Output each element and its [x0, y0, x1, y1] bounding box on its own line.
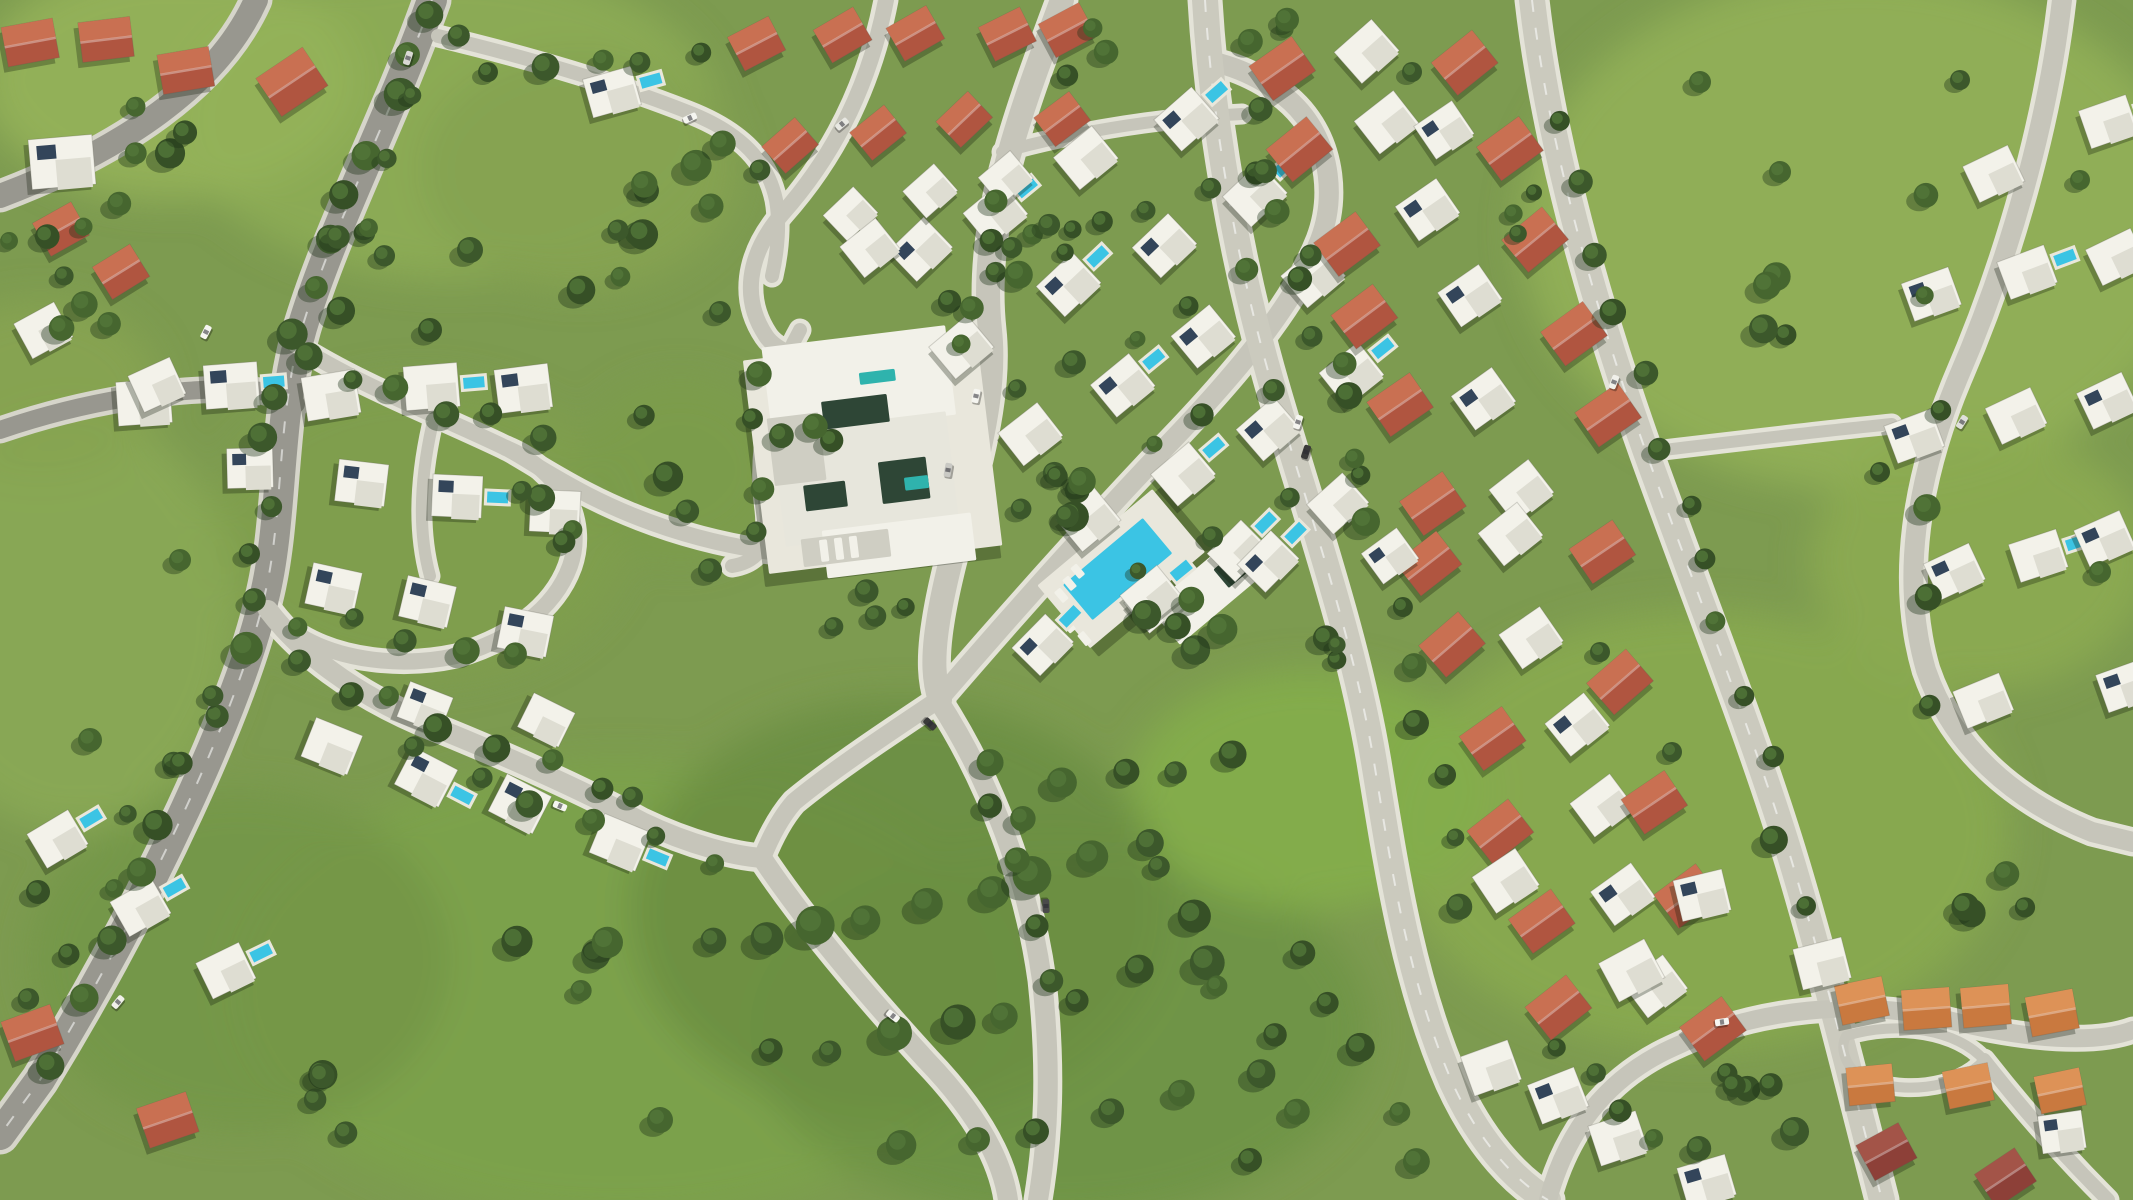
tree-canopy-highlight: [376, 247, 388, 259]
tree-canopy-highlight: [772, 426, 786, 440]
tree-canopy-highlight: [1872, 464, 1883, 475]
car: [1040, 897, 1050, 913]
tree-canopy-highlight: [2091, 563, 2103, 575]
tree-canopy-highlight: [1933, 402, 1944, 413]
tree-canopy-highlight: [128, 99, 139, 110]
tree-canopy-highlight: [533, 427, 548, 442]
tree-canopy-highlight: [648, 828, 658, 838]
grass-field: [630, 700, 1170, 1120]
tree-canopy-highlight: [250, 426, 266, 442]
tree-canopy-highlight: [1170, 1082, 1185, 1097]
tree-canopy-highlight: [1181, 298, 1192, 309]
tree-canopy-highlight: [987, 192, 1000, 205]
tree-canopy-highlight: [1094, 213, 1106, 225]
car-windshield: [1043, 904, 1048, 908]
tree-canopy-highlight: [171, 551, 183, 563]
tree-canopy-highlight: [703, 930, 717, 944]
tree-canopy-highlight: [1689, 1139, 1703, 1153]
tree-canopy-highlight: [1085, 20, 1096, 31]
tree-canopy-highlight: [693, 45, 704, 56]
tree-canopy-highlight: [1293, 943, 1307, 957]
tree-canopy-highlight: [56, 268, 67, 279]
tree-canopy-highlight: [1511, 227, 1521, 237]
tree-canopy-highlight: [889, 1133, 906, 1150]
tree-canopy-highlight: [749, 364, 763, 378]
tree-canopy-highlight: [1096, 42, 1110, 56]
tree-canopy-highlight: [264, 386, 278, 400]
tree-canopy-highlight: [121, 807, 131, 817]
tree-canopy-highlight: [555, 533, 568, 546]
tree-canopy-highlight: [707, 856, 717, 866]
tree-canopy-highlight: [1193, 406, 1206, 419]
tree-canopy-highlight: [1148, 437, 1157, 446]
tree-canopy-highlight: [534, 56, 549, 71]
tree-canopy-highlight: [1319, 994, 1331, 1006]
tree-canopy-highlight: [1406, 1151, 1421, 1166]
tree-canopy-highlight: [631, 222, 648, 239]
tree-canopy-highlight: [1181, 589, 1195, 603]
tree-canopy-highlight: [330, 299, 346, 315]
tree-canopy-highlight: [518, 793, 533, 808]
tree-canopy-highlight: [474, 770, 485, 781]
tree-canopy-highlight: [1042, 971, 1055, 984]
tree-canopy-highlight: [1736, 688, 1747, 699]
tree-canopy-highlight: [145, 813, 162, 830]
tree-canopy-highlight: [347, 610, 357, 620]
tree-canopy-highlight: [80, 730, 93, 743]
tree-canopy-highlight: [1028, 917, 1041, 930]
tree-canopy-highlight: [361, 220, 371, 230]
tree-canopy-highlight: [1437, 766, 1449, 778]
tree-canopy-highlight: [569, 278, 585, 294]
tree-canopy-highlight: [290, 652, 303, 665]
tree-canopy-highlight: [1404, 64, 1415, 75]
building-red-roof: [73, 17, 135, 69]
tree-canopy-highlight: [1058, 245, 1068, 255]
tree-canopy-highlight: [1921, 697, 1933, 709]
tree-canopy-highlight: [341, 685, 355, 699]
tree-canopy-highlight: [1765, 748, 1777, 760]
tree-canopy-highlight: [1026, 1121, 1040, 1135]
tree-canopy-highlight: [1059, 67, 1071, 79]
roof-wing: [2057, 1127, 2084, 1153]
tree-canopy-highlight: [307, 278, 320, 291]
tree-canopy-highlight: [544, 751, 556, 763]
tree-canopy-highlight: [595, 930, 612, 947]
tree-canopy-highlight: [701, 196, 715, 210]
tree-canopy-highlight: [175, 123, 188, 136]
tree-canopy-highlight: [1330, 638, 1339, 647]
tree-canopy-highlight: [460, 240, 474, 254]
solar-panels: [36, 145, 56, 161]
tree-canopy-highlight: [1611, 1102, 1624, 1115]
tree-canopy-highlight: [20, 990, 32, 1002]
tree-canopy-highlight: [1506, 206, 1516, 216]
car-windshield: [1720, 1019, 1725, 1025]
tree-canopy-highlight: [1684, 498, 1695, 509]
solar-panels: [210, 370, 227, 384]
tree-canopy-highlight: [1240, 1150, 1253, 1163]
tree-canopy-highlight: [418, 4, 433, 19]
tree-canopy-highlight: [345, 372, 355, 382]
tree-canopy-highlight: [337, 1124, 350, 1137]
tree-canopy-highlight: [1952, 72, 1963, 83]
tree-canopy-highlight: [635, 407, 647, 419]
tree-canopy-highlight: [1040, 216, 1052, 228]
tree-canopy-highlight: [1954, 896, 1969, 911]
solar-panels: [343, 466, 359, 479]
tree-canopy-highlight: [1917, 586, 1932, 601]
roof-wing: [451, 494, 480, 520]
tree-canopy-highlight: [962, 298, 975, 311]
tree-canopy-highlight: [853, 908, 870, 925]
tree-canopy-highlight: [805, 416, 819, 430]
tree-canopy-highlight: [1064, 353, 1077, 366]
tree-canopy-highlight: [385, 377, 399, 391]
tree-canopy-highlight: [355, 144, 371, 160]
tree-canopy-highlight: [1138, 203, 1148, 213]
tree-canopy-highlight: [312, 1066, 326, 1080]
tree-canopy-highlight: [1552, 113, 1563, 124]
tree-canopy-highlight: [396, 632, 409, 645]
tree-canopy-highlight: [1798, 898, 1809, 909]
tree-canopy-highlight: [1166, 764, 1178, 776]
tree-canopy-highlight: [1762, 829, 1778, 845]
tree-canopy-highlight: [987, 264, 998, 275]
tree-canopy-highlight: [172, 754, 185, 767]
roof-wing: [518, 383, 551, 413]
tree-canopy-highlight: [73, 987, 89, 1003]
tree-canopy-highlight: [1636, 363, 1650, 377]
tree-canopy-highlight: [1752, 317, 1768, 333]
tree-canopy-highlight: [650, 1110, 664, 1124]
solar-panels: [2043, 1119, 2058, 1131]
tree-canopy-highlight: [754, 925, 772, 943]
tree-canopy-highlight: [1010, 381, 1020, 391]
swimming-pool: [463, 376, 485, 389]
tree-canopy-highlight: [485, 737, 500, 752]
tree-canopy-highlight: [1916, 497, 1931, 512]
tree-canopy-highlight: [130, 860, 146, 876]
tree-canopy-highlight: [1203, 180, 1214, 191]
tree-canopy-highlight: [1588, 1065, 1599, 1076]
tree-canopy-highlight: [1917, 288, 1927, 298]
tree-canopy-highlight: [1691, 73, 1703, 85]
roof-wing: [325, 389, 359, 420]
roof-wing: [55, 157, 93, 190]
tree-canopy-highlight: [1338, 385, 1353, 400]
structure-part: [803, 481, 848, 512]
tree-canopy-highlight: [1762, 1075, 1775, 1088]
tree-canopy-highlight: [60, 946, 72, 958]
building-white-roof: [2033, 1110, 2088, 1160]
tree-canopy-highlight: [530, 487, 545, 502]
tree-canopy-highlight: [700, 561, 713, 574]
tree-canopy-highlight: [1448, 830, 1458, 840]
tree-canopy-highlight: [51, 318, 65, 332]
tree-canopy-highlight: [1756, 274, 1771, 289]
tree-canopy-highlight: [634, 174, 649, 189]
tree-canopy-highlight: [1646, 1131, 1656, 1141]
solar-panels: [232, 454, 246, 466]
tree-canopy-highlight: [1013, 501, 1024, 512]
tree-canopy-highlight: [753, 480, 766, 493]
tree-canopy-highlight: [678, 502, 691, 515]
tree-canopy-highlight: [1725, 1076, 1738, 1089]
tree-canopy-highlight: [1150, 858, 1162, 870]
tree-canopy-highlight: [110, 194, 123, 207]
tree-canopy-highlight: [1916, 185, 1930, 199]
tree-canopy-highlight: [1255, 161, 1268, 174]
tree-canopy-highlight: [761, 1041, 774, 1054]
tree-canopy-highlight: [1696, 550, 1708, 562]
tree-canopy-highlight: [100, 928, 116, 944]
tree-canopy-highlight: [1304, 328, 1316, 340]
tree-canopy-highlight: [504, 929, 521, 946]
tree-canopy-highlight: [940, 292, 953, 305]
tree-canopy-highlight: [1771, 163, 1783, 175]
tree-canopy-highlight: [1266, 1025, 1279, 1038]
tree-canopy-highlight: [857, 582, 870, 595]
tree-canopy-highlight: [2, 234, 12, 244]
tree-canopy-highlight: [684, 153, 701, 170]
tree-canopy-highlight: [1265, 381, 1277, 393]
tree-canopy-highlight: [1315, 628, 1329, 642]
tree-canopy-highlight: [610, 222, 622, 234]
tree-canopy-highlight: [867, 607, 879, 619]
tree-canopy-highlight: [1007, 850, 1021, 864]
building-white-roof: [23, 134, 96, 195]
tree-canopy-highlight: [1996, 864, 2010, 878]
tree-canopy-highlight: [1395, 599, 1406, 610]
tree-canopy-highlight: [1139, 832, 1154, 847]
tree-canopy-highlight: [800, 910, 821, 931]
tree-canopy-highlight: [39, 1054, 55, 1070]
tree-canopy-highlight: [1128, 957, 1144, 973]
tree-canopy-highlight: [954, 336, 964, 346]
tree-canopy-highlight: [1237, 260, 1250, 273]
tree-canopy-highlight: [2072, 172, 2083, 183]
tree-canopy-highlight: [1348, 1036, 1364, 1052]
tree-canopy-highlight: [1193, 949, 1212, 968]
tree-canopy-highlight: [37, 227, 51, 241]
tree-canopy-highlight: [595, 52, 607, 64]
tree-canopy-highlight: [1602, 301, 1617, 316]
tree-canopy-highlight: [1404, 656, 1418, 670]
tree-canopy-highlight: [1240, 31, 1254, 45]
tree-canopy-highlight: [1335, 354, 1348, 367]
tree-canopy-highlight: [107, 881, 117, 891]
roof-wing: [354, 480, 384, 508]
tree-canopy-highlight: [968, 1130, 982, 1144]
tree-canopy-highlight: [290, 619, 301, 630]
tree-canopy-highlight: [436, 404, 450, 418]
tree-canopy-highlight: [1101, 1101, 1115, 1115]
tree-canopy-highlight: [711, 303, 723, 315]
tree-canopy-highlight: [1391, 1104, 1403, 1116]
tree-canopy-highlight: [1065, 222, 1075, 232]
solar-panels: [501, 373, 519, 387]
solar-panels: [438, 480, 454, 492]
tree-canopy-highlight: [306, 1091, 318, 1103]
tree-canopy-highlight: [263, 498, 275, 510]
roof-wing: [226, 381, 258, 410]
tree-canopy-highlight: [744, 410, 756, 422]
tree-canopy-highlight: [1208, 978, 1220, 990]
tree-canopy-highlight: [982, 231, 995, 244]
building-orange-roof: [1896, 987, 1952, 1036]
tree-canopy-highlight: [826, 619, 837, 630]
tree-canopy-highlight: [898, 600, 908, 610]
tree-canopy-highlight: [1405, 712, 1419, 726]
aerial-photograph: [0, 0, 2133, 1200]
tree-canopy-highlight: [1783, 1120, 1799, 1136]
building-orange-roof: [1955, 984, 2012, 1034]
tree-canopy-highlight: [584, 811, 597, 824]
tree-canopy-highlight: [1549, 1040, 1559, 1050]
tree-canopy-highlight: [1777, 326, 1789, 338]
tree-canopy-highlight: [405, 88, 415, 98]
tree-canopy-highlight: [1135, 603, 1151, 619]
tree-canopy-highlight: [426, 716, 442, 732]
tree-canopy-highlight: [2017, 899, 2028, 910]
tree-canopy-highlight: [1068, 991, 1081, 1004]
tree-canopy-highlight: [332, 183, 348, 199]
tree-canopy-highlight: [379, 151, 390, 162]
tree-canopy-highlight: [979, 752, 994, 767]
tree-canopy-highlight: [1290, 269, 1304, 283]
tree-canopy-highlight: [480, 64, 491, 75]
tree-canopy-highlight: [74, 294, 89, 309]
tree-canopy-highlight: [1571, 172, 1584, 185]
tree-canopy-highlight: [821, 1043, 833, 1055]
tree-canopy-highlight: [1181, 903, 1199, 921]
tree-canopy-highlight: [1079, 844, 1097, 862]
tree-canopy-highlight: [944, 1008, 963, 1027]
tree-canopy-highlight: [1071, 471, 1086, 486]
swimming-pool: [487, 491, 508, 503]
tree-canopy-highlight: [127, 144, 139, 156]
tree-canopy-highlight: [482, 405, 494, 417]
tree-canopy-highlight: [1204, 528, 1216, 540]
tree-canopy-highlight: [1527, 186, 1536, 195]
tree-canopy-highlight: [1008, 264, 1023, 279]
tree-canopy-highlight: [613, 269, 624, 280]
tree-canopy-highlight: [594, 780, 606, 792]
tree-canopy-highlight: [1013, 809, 1027, 823]
tree-canopy-highlight: [1049, 468, 1061, 480]
tree-canopy-highlight: [1251, 99, 1264, 112]
tree-canopy-highlight: [1282, 490, 1293, 501]
tree-canopy-highlight: [980, 796, 993, 809]
tree-canopy-highlight: [241, 545, 253, 557]
tree-canopy-highlight: [980, 879, 998, 897]
tree-canopy-highlight: [1267, 201, 1281, 215]
tree-canopy-highlight: [420, 320, 433, 333]
tree-canopy-highlight: [993, 1005, 1008, 1020]
building-red-roof: [152, 47, 216, 101]
tree-canopy-highlight: [406, 738, 417, 749]
building-orange-roof: [1841, 1064, 1896, 1112]
tree-canopy-highlight: [1058, 507, 1071, 520]
roof-wing: [245, 465, 271, 490]
tree-canopy-highlight: [1116, 761, 1130, 775]
tree-canopy-highlight: [100, 314, 113, 327]
aerial-canvas: [0, 0, 2133, 1200]
grass-field: [1130, 670, 1490, 910]
tree-canopy-highlight: [656, 465, 673, 482]
tree-canopy-highlight: [1347, 451, 1358, 462]
tree-canopy-highlight: [28, 882, 41, 895]
tree-canopy-highlight: [1585, 245, 1599, 259]
tree-canopy-highlight: [1286, 1101, 1300, 1115]
tree-canopy-highlight: [748, 524, 759, 535]
tree-canopy-highlight: [381, 688, 392, 699]
tree-canopy-highlight: [450, 27, 462, 39]
tree-canopy-highlight: [1221, 743, 1236, 758]
tree-canopy-highlight: [1050, 770, 1067, 787]
tree-canopy-highlight: [572, 982, 584, 994]
tree-canopy-highlight: [245, 590, 258, 603]
tree-canopy-highlight: [1592, 644, 1603, 655]
tree-canopy-highlight: [455, 640, 470, 655]
tree-canopy-highlight: [204, 687, 216, 699]
tree-canopy-highlight: [631, 54, 643, 66]
tree-canopy-highlight: [1277, 10, 1290, 23]
tree-canopy-highlight: [297, 345, 313, 361]
tree-canopy-highlight: [1249, 1062, 1265, 1078]
tree-canopy-highlight: [1167, 615, 1181, 629]
tree-canopy-highlight: [914, 891, 931, 908]
tree-canopy-highlight: [1719, 1065, 1730, 1076]
roof-hip-highlight: [1901, 987, 1950, 1010]
tree-canopy-highlight: [1210, 617, 1227, 634]
tree-canopy-highlight: [1302, 247, 1314, 259]
tree-canopy-highlight: [624, 789, 635, 800]
tree-canopy-highlight: [1650, 440, 1662, 452]
tree-canopy-highlight: [751, 162, 763, 174]
tree-canopy-highlight: [712, 133, 726, 147]
tree-canopy-highlight: [329, 228, 342, 241]
tree-canopy-highlight: [233, 635, 251, 653]
tree-canopy-highlight: [514, 483, 525, 494]
building-white-roof: [329, 458, 389, 511]
tree-canopy-highlight: [1449, 896, 1463, 910]
tree-canopy-highlight: [280, 322, 297, 339]
tree-canopy-highlight: [1664, 744, 1675, 755]
tree-canopy-highlight: [506, 645, 519, 658]
tree-canopy-highlight: [1707, 613, 1718, 624]
tree-canopy-highlight: [1131, 333, 1140, 342]
tree-canopy-highlight: [1183, 638, 1199, 654]
tree-canopy-highlight: [1131, 564, 1140, 573]
tree-canopy-highlight: [76, 219, 86, 229]
tree-canopy-highlight: [1003, 239, 1015, 251]
tree-canopy-highlight: [1354, 510, 1370, 526]
